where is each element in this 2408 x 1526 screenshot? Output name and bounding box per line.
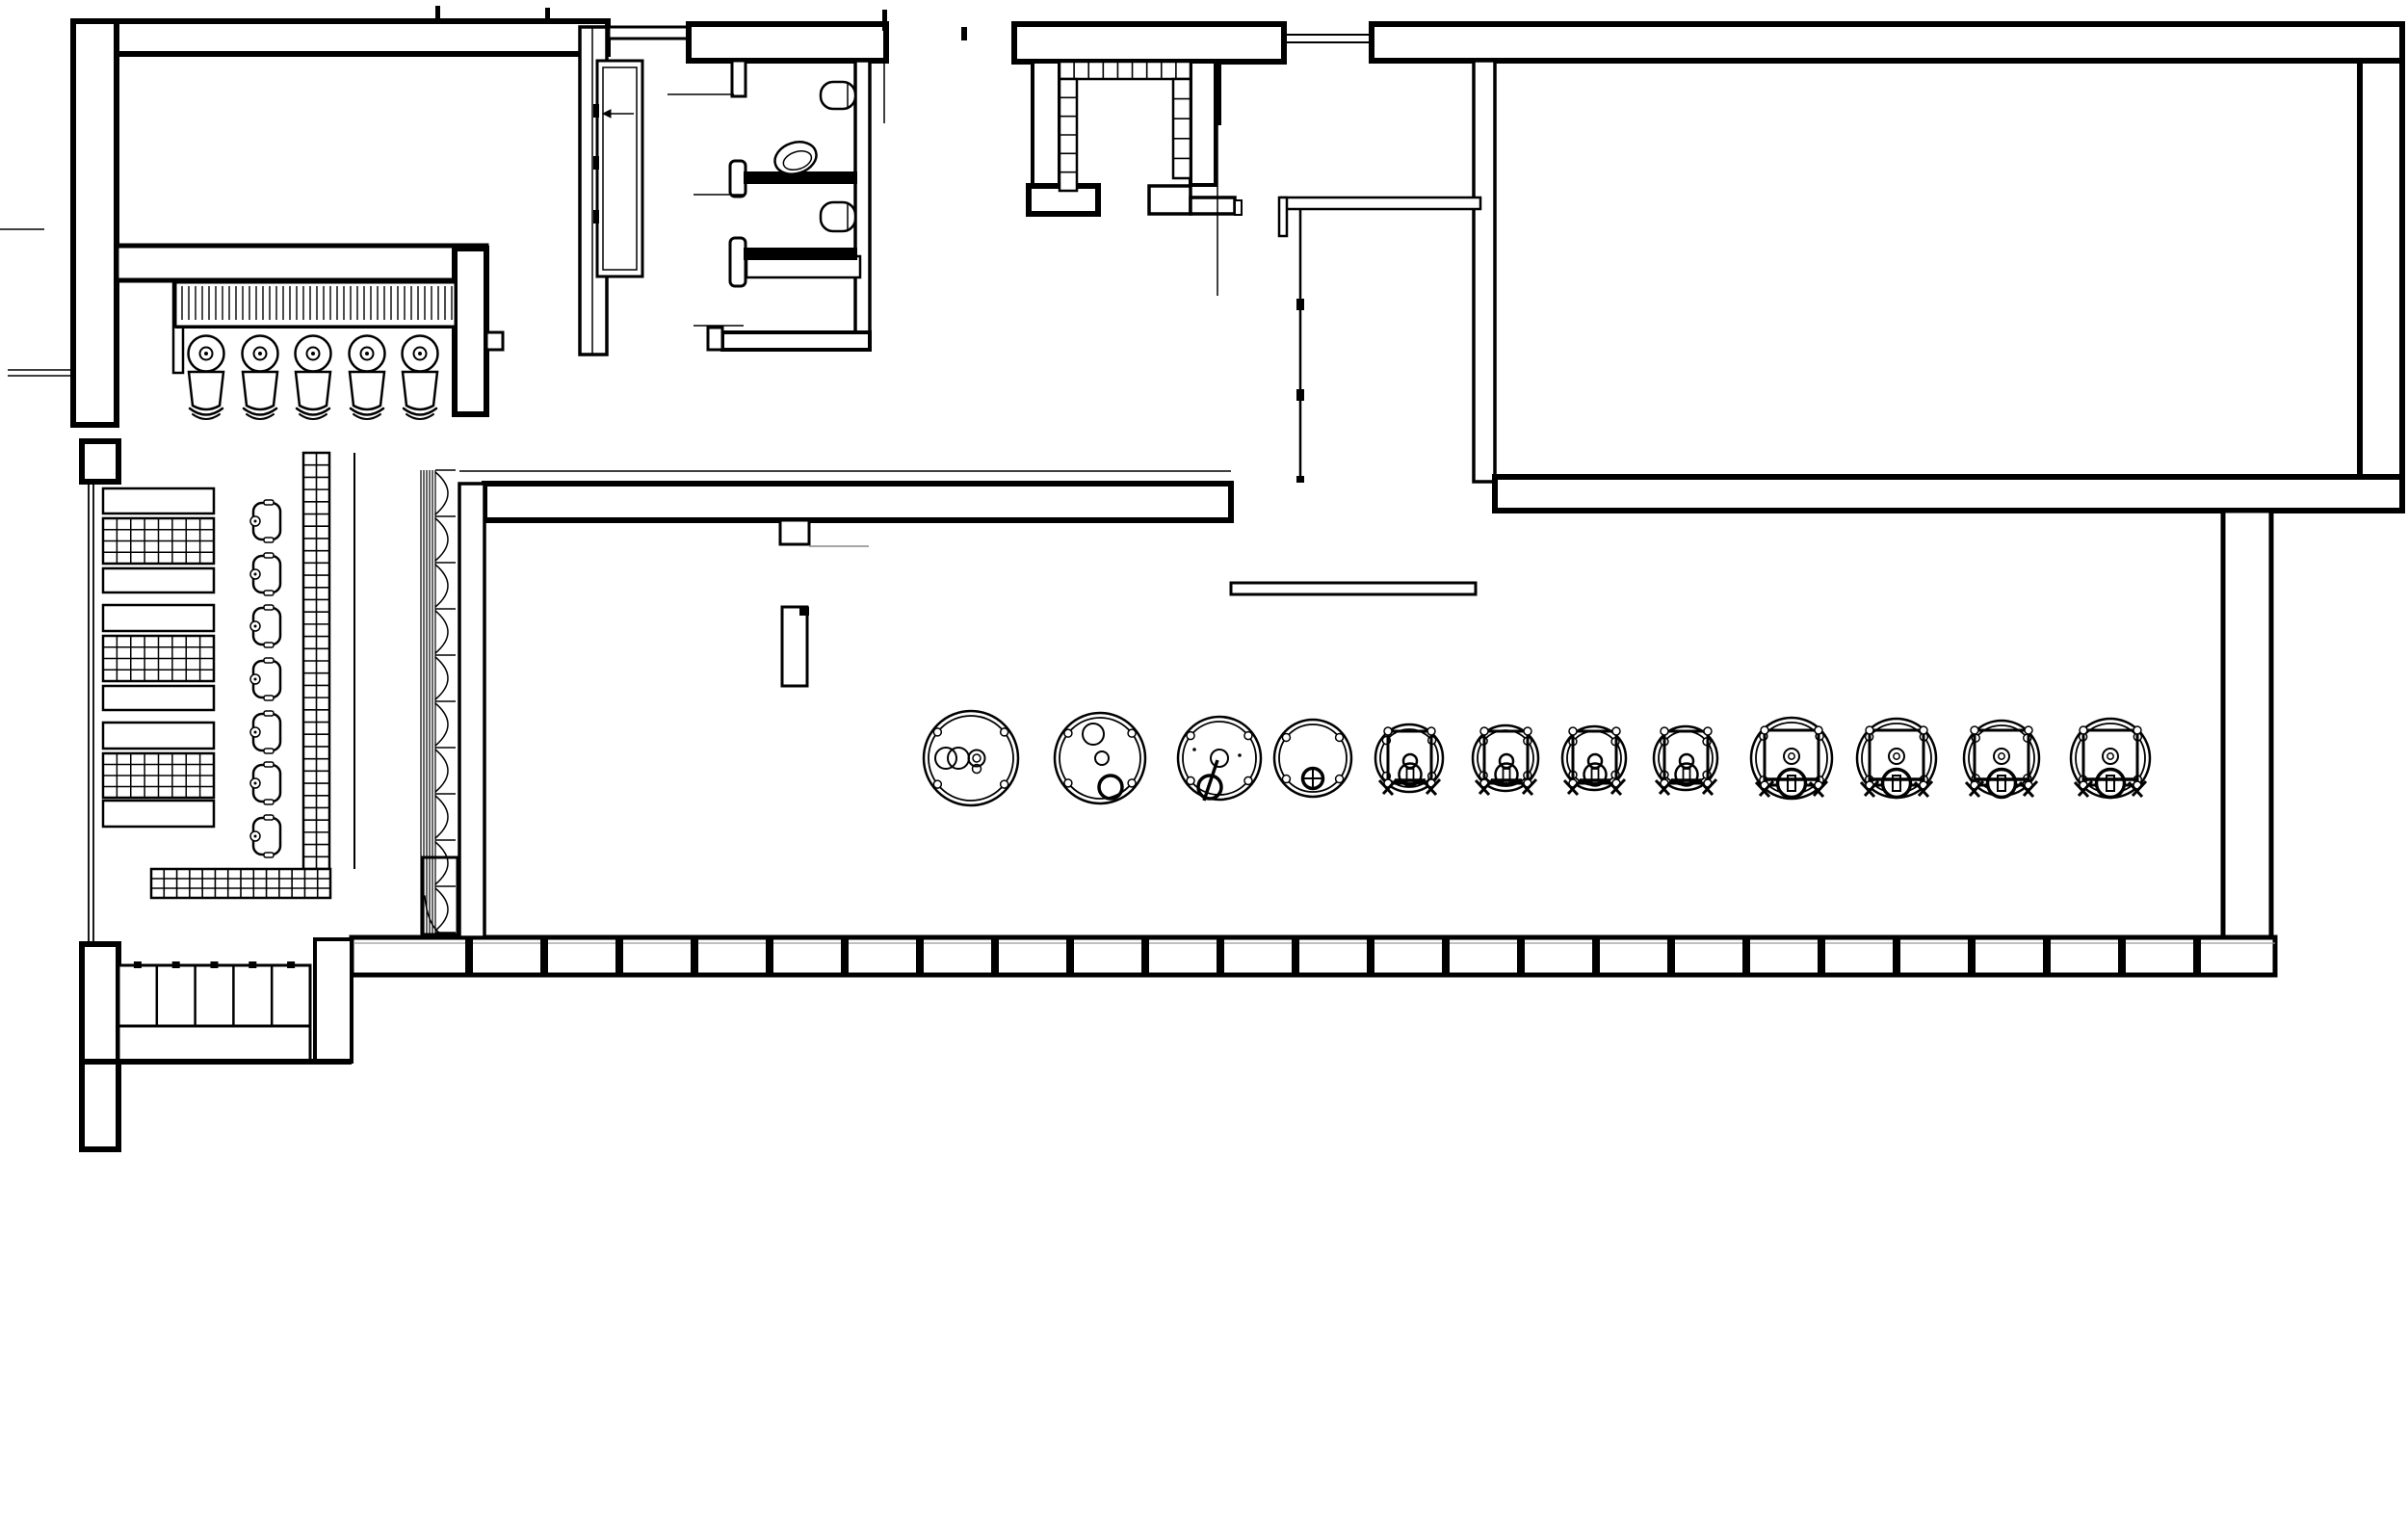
topright-top-wall: [1372, 24, 2402, 61]
window-mullion: [1592, 937, 1600, 975]
survey-tick: [545, 8, 550, 23]
rim-bolt: [1244, 776, 1252, 784]
accordion-arc: [435, 796, 448, 838]
stool-seat-dot: [418, 352, 422, 355]
step-tick: [211, 961, 219, 968]
tank-agitator: [1375, 724, 1443, 795]
barroom-top-wall: [73, 21, 608, 54]
chimney-top-bar: [1014, 24, 1284, 62]
rim-bolt: [1128, 779, 1136, 787]
tank-motor: [1857, 719, 1936, 798]
chair-nub: [264, 853, 274, 857]
bar-stool: [243, 336, 278, 420]
closet-fitting: [593, 156, 599, 170]
step-tick: [134, 961, 142, 968]
shelving: [103, 488, 214, 827]
rim-bolt: [1336, 776, 1344, 783]
chair-knob-dot: [254, 678, 257, 681]
side-chair: [250, 658, 280, 700]
hall-left-wall: [459, 484, 484, 937]
chair-knob-dot: [254, 625, 257, 628]
stool-seat-dot: [311, 352, 315, 355]
chimney-right-foot: [1149, 186, 1191, 214]
tank-open-1: [924, 711, 1018, 805]
chair-nub: [264, 815, 274, 820]
stool-back: [350, 372, 384, 409]
window-mullion: [1367, 937, 1374, 975]
rim-bolt: [1064, 729, 1072, 737]
deck-pier: [82, 944, 118, 1149]
chair-knob-dot: [254, 520, 257, 523]
closet-fitting: [593, 210, 599, 224]
chair-nub: [264, 762, 274, 767]
rim-bolt: [2133, 726, 2141, 734]
bath-top-wall: [689, 24, 886, 61]
accordion-arc: [435, 703, 448, 746]
chair-knob-dot: [254, 573, 257, 576]
process-tanks: [924, 711, 2150, 805]
shaft-hook: [1279, 197, 1287, 236]
topright-right-wall: [2360, 61, 2402, 477]
rim-bolt: [1480, 727, 1488, 735]
bath-right-wall: [855, 61, 870, 350]
side-chair: [250, 815, 280, 857]
step-tick: [172, 961, 180, 968]
window-mullion: [465, 937, 473, 975]
window-mullion: [1217, 937, 1224, 975]
window-mullion: [1517, 937, 1525, 975]
window-mullion: [1968, 937, 1976, 975]
bench-tab: [793, 251, 799, 257]
bar-counter: [175, 282, 456, 327]
window-mullion: [691, 937, 698, 975]
tank-open-3: [1178, 717, 1261, 801]
floor-plan-page: [0, 0, 2408, 1526]
tank-rim-outer: [1178, 717, 1261, 800]
tank-agitator: [1473, 725, 1538, 795]
toilet-bowl: [821, 202, 855, 231]
accordion-arc: [435, 518, 448, 561]
barroom-left-wall: [73, 21, 117, 425]
tank-motor: [2071, 719, 2150, 798]
tank-motor: [1964, 721, 2039, 798]
door-handle: [486, 332, 503, 350]
window-mullion: [841, 937, 849, 975]
floor-plan-drawing: [0, 0, 2408, 1526]
accordion-arc: [435, 657, 448, 699]
shelf-top-square: [82, 441, 118, 482]
shelf-unit: [103, 605, 214, 631]
rim-bolt: [1704, 727, 1712, 735]
chair-nub: [264, 553, 274, 558]
rim-bolt: [1569, 727, 1577, 735]
deck-lower-strip: [118, 1026, 310, 1062]
hall-interior-stub: [782, 607, 807, 686]
deck-step-run: [118, 965, 310, 1026]
accordion-arc: [435, 472, 448, 514]
bar-stool: [403, 336, 438, 420]
window-mullion: [2193, 937, 2201, 975]
hall-right-wall: [2223, 511, 2271, 937]
step-tick: [287, 961, 295, 968]
barroom-right-wall: [455, 249, 486, 414]
window-mullion: [1141, 937, 1149, 975]
rim-bolt: [2080, 726, 2087, 734]
chimney-brick-right: [1173, 79, 1191, 178]
circle: [1192, 748, 1196, 751]
topright-left-wall: [1474, 61, 1495, 482]
walls: [73, 21, 2402, 1149]
survey-tick: [882, 10, 887, 31]
side-chairs: [250, 500, 280, 857]
hall-top-wall: [484, 484, 1231, 520]
side-chair: [250, 711, 280, 753]
window-mullion: [2118, 937, 2126, 975]
rim-bolt: [1187, 776, 1194, 784]
rim-bolt: [1920, 726, 1927, 734]
side-chair: [250, 500, 280, 542]
rim-bolt: [933, 780, 941, 788]
window-mullion: [991, 937, 999, 975]
stall-door-post: [732, 61, 746, 96]
stool-seat-dot: [365, 352, 369, 355]
mullion-endcap: [1296, 476, 1304, 483]
tank-agitator: [1562, 726, 1626, 795]
bench-tab: [754, 251, 761, 257]
stool-back: [243, 372, 277, 409]
chair-nub: [264, 605, 274, 610]
tank-agitator: [1654, 726, 1717, 795]
chair-knob-dot: [254, 731, 257, 734]
rim-bolt: [1427, 727, 1435, 735]
chair-nub: [264, 800, 274, 804]
barroom-divider-wall: [117, 246, 486, 280]
bar-stool: [296, 336, 331, 420]
window-mullion: [2043, 937, 2051, 975]
window-mullion: [1442, 937, 1450, 975]
rim-bolt: [1612, 727, 1620, 735]
rim-bolt: [1866, 726, 1873, 734]
rim-bolt: [1001, 780, 1008, 788]
partition-pilaster: [730, 161, 746, 197]
tank-open-2: [1055, 713, 1145, 803]
rim-bolt: [1128, 729, 1136, 737]
tank-motor: [1751, 718, 1832, 799]
window-mullion: [1742, 937, 1750, 975]
chair-nub: [264, 749, 274, 753]
rim-bolt: [1282, 776, 1290, 783]
rim-bolt: [1064, 779, 1072, 787]
partition-pilaster: [730, 238, 746, 286]
shelf-unit: [103, 801, 214, 827]
window-mullion: [1667, 937, 1675, 975]
rim-bolt: [2025, 726, 2032, 734]
rim-bolt: [1815, 726, 1822, 734]
hall-door-notch: [780, 520, 809, 544]
bath-top-thin-wall: [609, 27, 689, 39]
closet-fitting: [593, 104, 599, 118]
chair-nub: [264, 500, 274, 505]
chimney-brick-top: [1060, 62, 1191, 79]
survey-tick: [961, 27, 967, 40]
chair-nub: [264, 696, 274, 700]
closet-inner: [603, 67, 637, 270]
accordion-arc: [435, 565, 448, 607]
shelf-unit: [103, 488, 214, 513]
deck-steps: [118, 961, 310, 1026]
window-mullion: [1818, 937, 1825, 975]
bath-bottom-wall: [722, 332, 870, 350]
chair-knob-dot: [254, 782, 257, 785]
shelf-unit: [103, 568, 214, 592]
window-mullion: [1292, 937, 1299, 975]
circle: [1238, 753, 1242, 757]
chair-nub: [264, 591, 274, 595]
survey-tick: [435, 6, 440, 21]
bench-tab: [831, 251, 838, 257]
mullion-tick: [1296, 299, 1304, 310]
topright-bottom-wall: [1495, 477, 2402, 511]
side-chair: [250, 553, 280, 595]
window-mullion: [1893, 937, 1900, 975]
window-wall: [352, 937, 2275, 975]
stool-seat-dot: [258, 352, 262, 355]
rim-bolt: [1524, 727, 1531, 735]
window-mullion: [766, 937, 773, 975]
accordion-arc: [435, 611, 448, 653]
rim-bolt: [1244, 732, 1252, 740]
mullion-tick: [1296, 389, 1304, 401]
bar-stools: [189, 336, 438, 420]
bar-stool: [350, 336, 385, 420]
stub-corner: [799, 607, 809, 616]
tank-open-4: [1274, 720, 1351, 797]
chair-nub: [264, 643, 274, 647]
side-chair: [250, 762, 280, 804]
stool-back: [296, 372, 330, 409]
tank-rim-outer: [924, 711, 1018, 805]
rim-bolt: [1971, 726, 1978, 734]
toilet-bowl: [821, 82, 855, 109]
hall-top-east-wall: [1231, 583, 1476, 594]
shelf-unit: [103, 686, 214, 710]
bar-stool: [189, 336, 224, 420]
chair-nub: [264, 538, 274, 542]
chair-knob-dot: [254, 835, 257, 838]
window-mullion: [540, 937, 548, 975]
rim-bolt: [933, 728, 941, 736]
toilet: [821, 202, 855, 231]
chimney-right-step: [1191, 197, 1235, 214]
bath-door-jamb: [708, 328, 722, 350]
chair-nub: [264, 711, 274, 716]
rim-bolt: [1001, 728, 1008, 736]
stool-seat-dot: [204, 352, 208, 355]
corner-pier: [315, 939, 352, 1062]
window-mullion: [615, 937, 623, 975]
stool-back: [189, 372, 223, 409]
rim-bolt: [1384, 727, 1392, 735]
toilet: [821, 82, 855, 109]
rim-bolt: [1336, 733, 1344, 741]
step-tick: [249, 961, 256, 968]
rim-bolt: [1282, 733, 1290, 741]
window-mullion: [1066, 937, 1074, 975]
chair-nub: [264, 658, 274, 663]
rim-bolt: [1761, 726, 1768, 734]
accordion-arc: [435, 750, 448, 792]
rim-bolt: [1661, 727, 1668, 735]
chimney-right-wall: [1191, 62, 1216, 185]
chimney-notch: [1235, 200, 1242, 215]
shaft-ledge: [1281, 197, 1480, 209]
chimney-tick: [1216, 62, 1221, 125]
side-chair: [250, 605, 280, 647]
bar-counter-top: [175, 282, 456, 327]
window-mullion: [916, 937, 924, 975]
rim-bolt: [1187, 732, 1194, 740]
stool-back: [403, 372, 437, 409]
shelf-unit: [103, 723, 214, 749]
